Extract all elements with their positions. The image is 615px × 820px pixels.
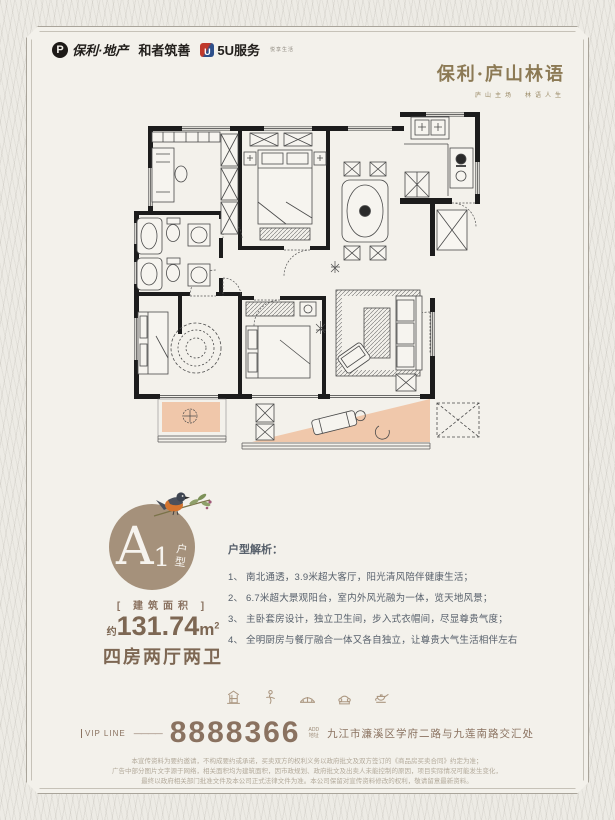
bathroom-furniture [137,218,210,290]
floor-plan [134,106,490,466]
contact-row: VIP LINE ———— 8888366 ADD 地址 九江市濂溪区学府二路与… [0,718,615,748]
five-u-logo-text: 5U服务 [217,40,260,59]
area-unit: m [199,620,214,639]
bridge-icon [299,689,316,711]
analysis-item: 2、 6.7米超大景观阳台，室内外风光融为一体，览天地风景； [228,588,528,609]
brand-title: 保利·庐山林语 [437,60,565,86]
study-furniture [152,132,238,234]
analysis-item: 4、 全明厨房与餐厅融合一体又各自独立，让尊贵大气生活相伴左右 [228,630,528,651]
area-value: 131.74 [117,611,200,641]
kitchen-furniture [404,117,473,197]
poly-logo-text: 保利·地产 [72,40,128,59]
five-u-logo: U 5U服务 [200,40,260,59]
unit-number: 1 [154,545,171,571]
five-u-tagline: 悦享生活 [270,47,294,53]
phone-number: 8888366 [170,718,301,748]
balcony-highlights [162,399,430,442]
flyer-page: { "header": { "logo_poly_mark": "P", "lo… [0,0,615,820]
disclaimer-line: 广告中部分图片文字源于网络，相关面积均为建筑面积，因市政规划、政府批文及出卖人未… [92,767,522,777]
unit-suffix: 户型 [170,542,189,570]
hezhe-logo-text: 和者筑善 [138,40,190,59]
area-approx: 约 [107,627,117,638]
vip-line-label: VIP LINE [81,729,126,738]
disclaimer-line: 最终以政府相关部门批准文件及本公司正式法律文件为准。本公司保留对宣传资料修改的权… [92,777,522,787]
lifestyle-icon-row [0,689,615,711]
room-layout: 四房两厅两卫 [78,643,248,669]
legal-disclaimer: 本宣传资料为要约邀请，不构成要约或承诺，买卖双方的权利义务以政府批文及双方签订的… [92,757,522,787]
area-value-line: 约131.74m2 [78,611,248,642]
entry-utility [437,210,479,437]
area-section-label: [ 建筑面积 ] [88,597,238,612]
unit-letter: A [116,521,154,573]
teapot-icon [373,689,390,711]
telephone-icon [336,689,353,711]
bedroom3-furniture [246,302,316,378]
address-label: ADD 地址 [309,727,320,739]
living-room-furniture [336,290,422,391]
address-label-cn: 地址 [309,733,319,739]
dining-furniture [342,162,388,260]
analysis-item: 3、 主卧套房设计，独立卫生间，步入式衣帽间，尽显尊贵气度； [228,609,528,630]
area-sup: 2 [214,621,219,631]
poly-logo: P 保利·地产 [52,40,128,59]
project-brand: 保利·庐山林语 庐山主场 林语人生 [437,60,565,99]
pagoda-icon [225,689,242,711]
disclaimer-line: 本宣传资料为要约邀请，不构成要约或承诺，买卖双方的权利义务以政府批文及双方签订的… [92,757,522,767]
vip-line-dash: ———— [134,729,162,738]
brand-slogan: 庐山主场 林语人生 [437,90,565,99]
analysis-item: 1、 南北通透，3.9米超大客厅，阳光清风陪伴健康生活； [228,567,528,588]
developer-logos: P 保利·地产 和者筑善 U 5U服务 悦享生活 [52,40,294,59]
master-bedroom-furniture [138,296,221,374]
address-text: 九江市濂溪区学府二路与九莲南路交汇处 [327,726,534,741]
bedroom2-furniture [244,133,326,240]
bird-illustration [150,486,214,526]
analysis-title: 户型解析： [228,541,528,557]
dancer-icon [262,689,279,711]
five-u-icon: U [200,43,214,57]
unit-analysis: 户型解析： 1、 南北通透，3.9米超大客厅，阳光清风陪伴健康生活； 2、 6.… [228,541,528,651]
poly-p-icon: P [52,42,68,58]
